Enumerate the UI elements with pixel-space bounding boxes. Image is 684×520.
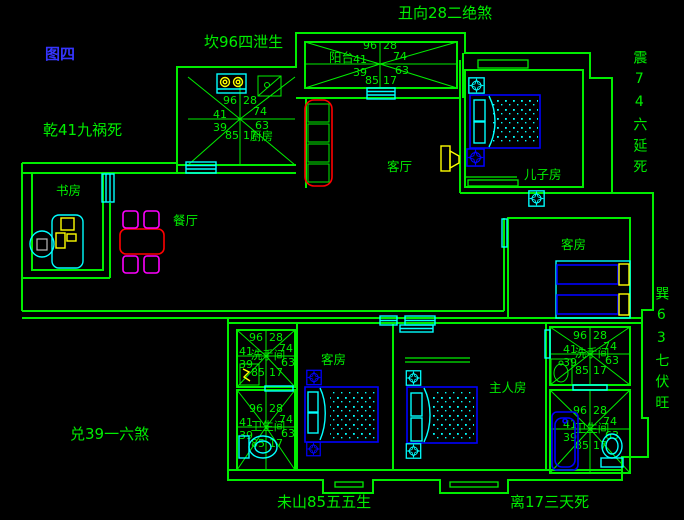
guest-bed	[305, 387, 378, 442]
dining-chairs	[123, 211, 159, 273]
room-label-dining: 餐厅	[173, 214, 198, 228]
annotation-right-upper: 震74六延死	[631, 50, 646, 180]
stove	[217, 74, 246, 93]
room-label-guest-right: 客房	[561, 238, 586, 252]
annotation-right-lower: 巽63七伏旺	[653, 286, 668, 416]
annotation-left-upper: 乾41九祸死	[43, 122, 122, 139]
annotation-left-lower: 兑39一六煞	[70, 426, 149, 443]
compass-kitchen: 9628417439638517厨房	[188, 77, 295, 165]
twin-beds	[556, 261, 630, 318]
compass-balcony: 9628417439638517	[305, 39, 457, 88]
room-label-washroom-right: 洗手间	[575, 346, 610, 360]
window-kitchen	[186, 162, 216, 173]
compass-number: 85	[575, 364, 589, 377]
compass-number: 85	[575, 439, 589, 452]
annotation-bottom-center: 未山85五五生	[277, 494, 371, 511]
figure-label: 图四	[45, 46, 75, 63]
compass-number: 17	[593, 439, 607, 452]
ceiling-lamp-icon	[406, 444, 420, 458]
kitchen-sink	[258, 76, 281, 96]
compass-number: 96	[363, 39, 377, 52]
compass-washroom-right: 9628417439638517洗手间	[550, 327, 630, 385]
room-label-kitchen: 厨房	[250, 129, 273, 143]
room-label-balcony: 阳台	[329, 51, 354, 65]
compass-number: 85	[225, 129, 239, 142]
compass-number: 41	[213, 108, 227, 121]
annotation-bottom-right: 离17三天死	[510, 494, 589, 511]
compass-layer: 9628417439638517厨房9628417439638517962841…	[188, 39, 630, 473]
dining-table	[120, 229, 164, 254]
master-bed	[407, 387, 477, 443]
annotation-top-center: 丑向28二绝煞	[398, 5, 492, 22]
room-label-bathroom-left: 卫生间	[251, 419, 286, 433]
wall-tv	[441, 146, 459, 171]
compass-number: 96	[223, 94, 237, 107]
ceiling-lamp-icon	[307, 442, 321, 456]
study-desk	[52, 215, 83, 268]
study-chair	[30, 231, 54, 257]
compass-number: 96	[249, 331, 263, 344]
ceiling-lamp-icon	[467, 149, 484, 166]
ceiling-lamp-icon	[469, 78, 484, 93]
floorplan-canvas: 9628417439638517厨房9628417439638517962841…	[0, 0, 684, 520]
compass-number: 74	[253, 105, 267, 118]
ceiling-lamp-icon	[307, 370, 321, 384]
compass-number: 63	[395, 64, 409, 77]
son-bed	[470, 95, 540, 148]
room-label-bathroom-right: 卫生间	[575, 421, 610, 435]
compass-number: 17	[383, 74, 397, 87]
door-master-top	[400, 325, 433, 332]
compass-number: 17	[269, 366, 283, 379]
compass-number: 96	[249, 402, 263, 415]
room-label-living: 客厅	[387, 160, 412, 174]
room-label-master: 主人房	[489, 381, 527, 395]
room-label-washroom-left: 洗手间	[251, 348, 286, 362]
compass-number: 96	[573, 329, 587, 342]
room-label-son: 儿子房	[524, 168, 562, 182]
ceiling-lamp-icon	[406, 371, 420, 385]
compass-bathroom-right: 9628417439638517卫生间	[550, 390, 630, 473]
compass-number: 85	[365, 74, 379, 87]
annotation-top-kitchen: 坎96四泄生	[204, 34, 283, 51]
compass-number: 96	[573, 404, 587, 417]
room-label-study: 书房	[56, 184, 81, 198]
planter	[305, 100, 332, 186]
compass-number: 85	[251, 366, 265, 379]
compass-number: 17	[593, 364, 607, 377]
compass-number: 74	[393, 50, 407, 63]
compass-number: 41	[353, 53, 367, 66]
room-label-guest-bottom: 客房	[321, 353, 346, 367]
